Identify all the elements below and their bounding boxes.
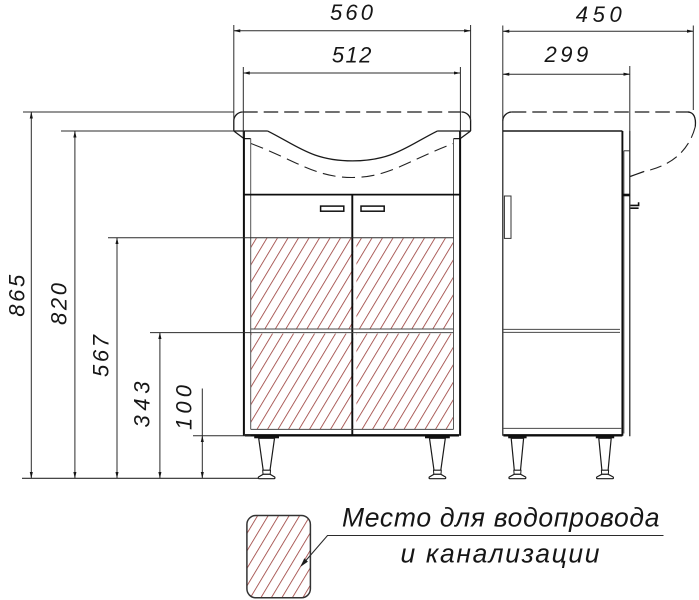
svg-text:Место для водопровода: Место для водопровода: [342, 503, 660, 533]
svg-text:820: 820: [47, 282, 72, 325]
svg-text:и канализации: и канализации: [401, 539, 600, 569]
svg-text:450: 450: [576, 2, 623, 27]
svg-text:865: 865: [5, 274, 30, 317]
svg-text:560: 560: [330, 0, 374, 25]
svg-text:567: 567: [89, 334, 114, 377]
svg-text:512: 512: [332, 42, 372, 67]
svg-text:299: 299: [544, 42, 589, 67]
svg-text:100: 100: [172, 384, 197, 430]
svg-text:343: 343: [130, 381, 155, 428]
